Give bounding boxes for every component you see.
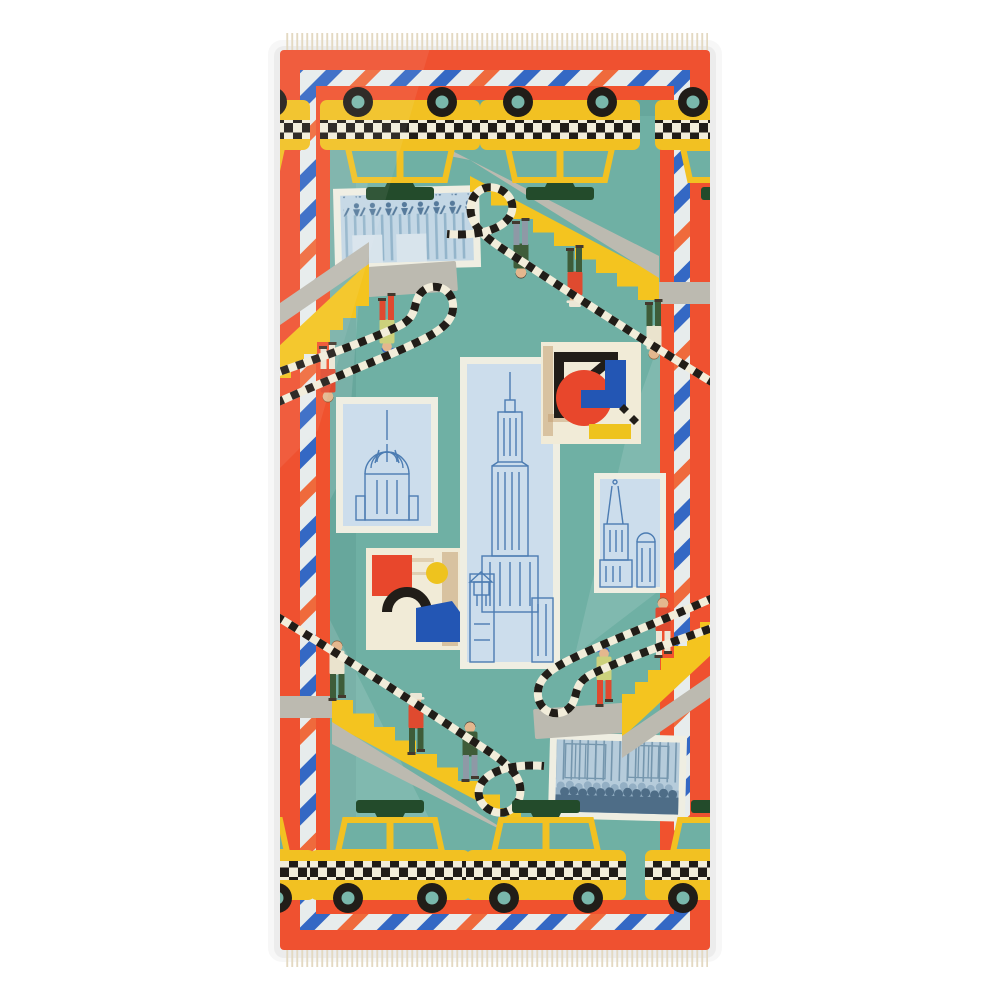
scarf-illustration xyxy=(0,0,1000,1000)
bottom-fringe xyxy=(284,950,708,967)
panel-church-towers xyxy=(594,473,666,593)
panel-abstract-collage-2 xyxy=(366,548,460,650)
panel-abstract-collage-1 xyxy=(541,342,641,444)
product-photo xyxy=(0,0,1000,1000)
top-fringe xyxy=(284,33,708,50)
panel-chrysler-building xyxy=(336,397,438,533)
